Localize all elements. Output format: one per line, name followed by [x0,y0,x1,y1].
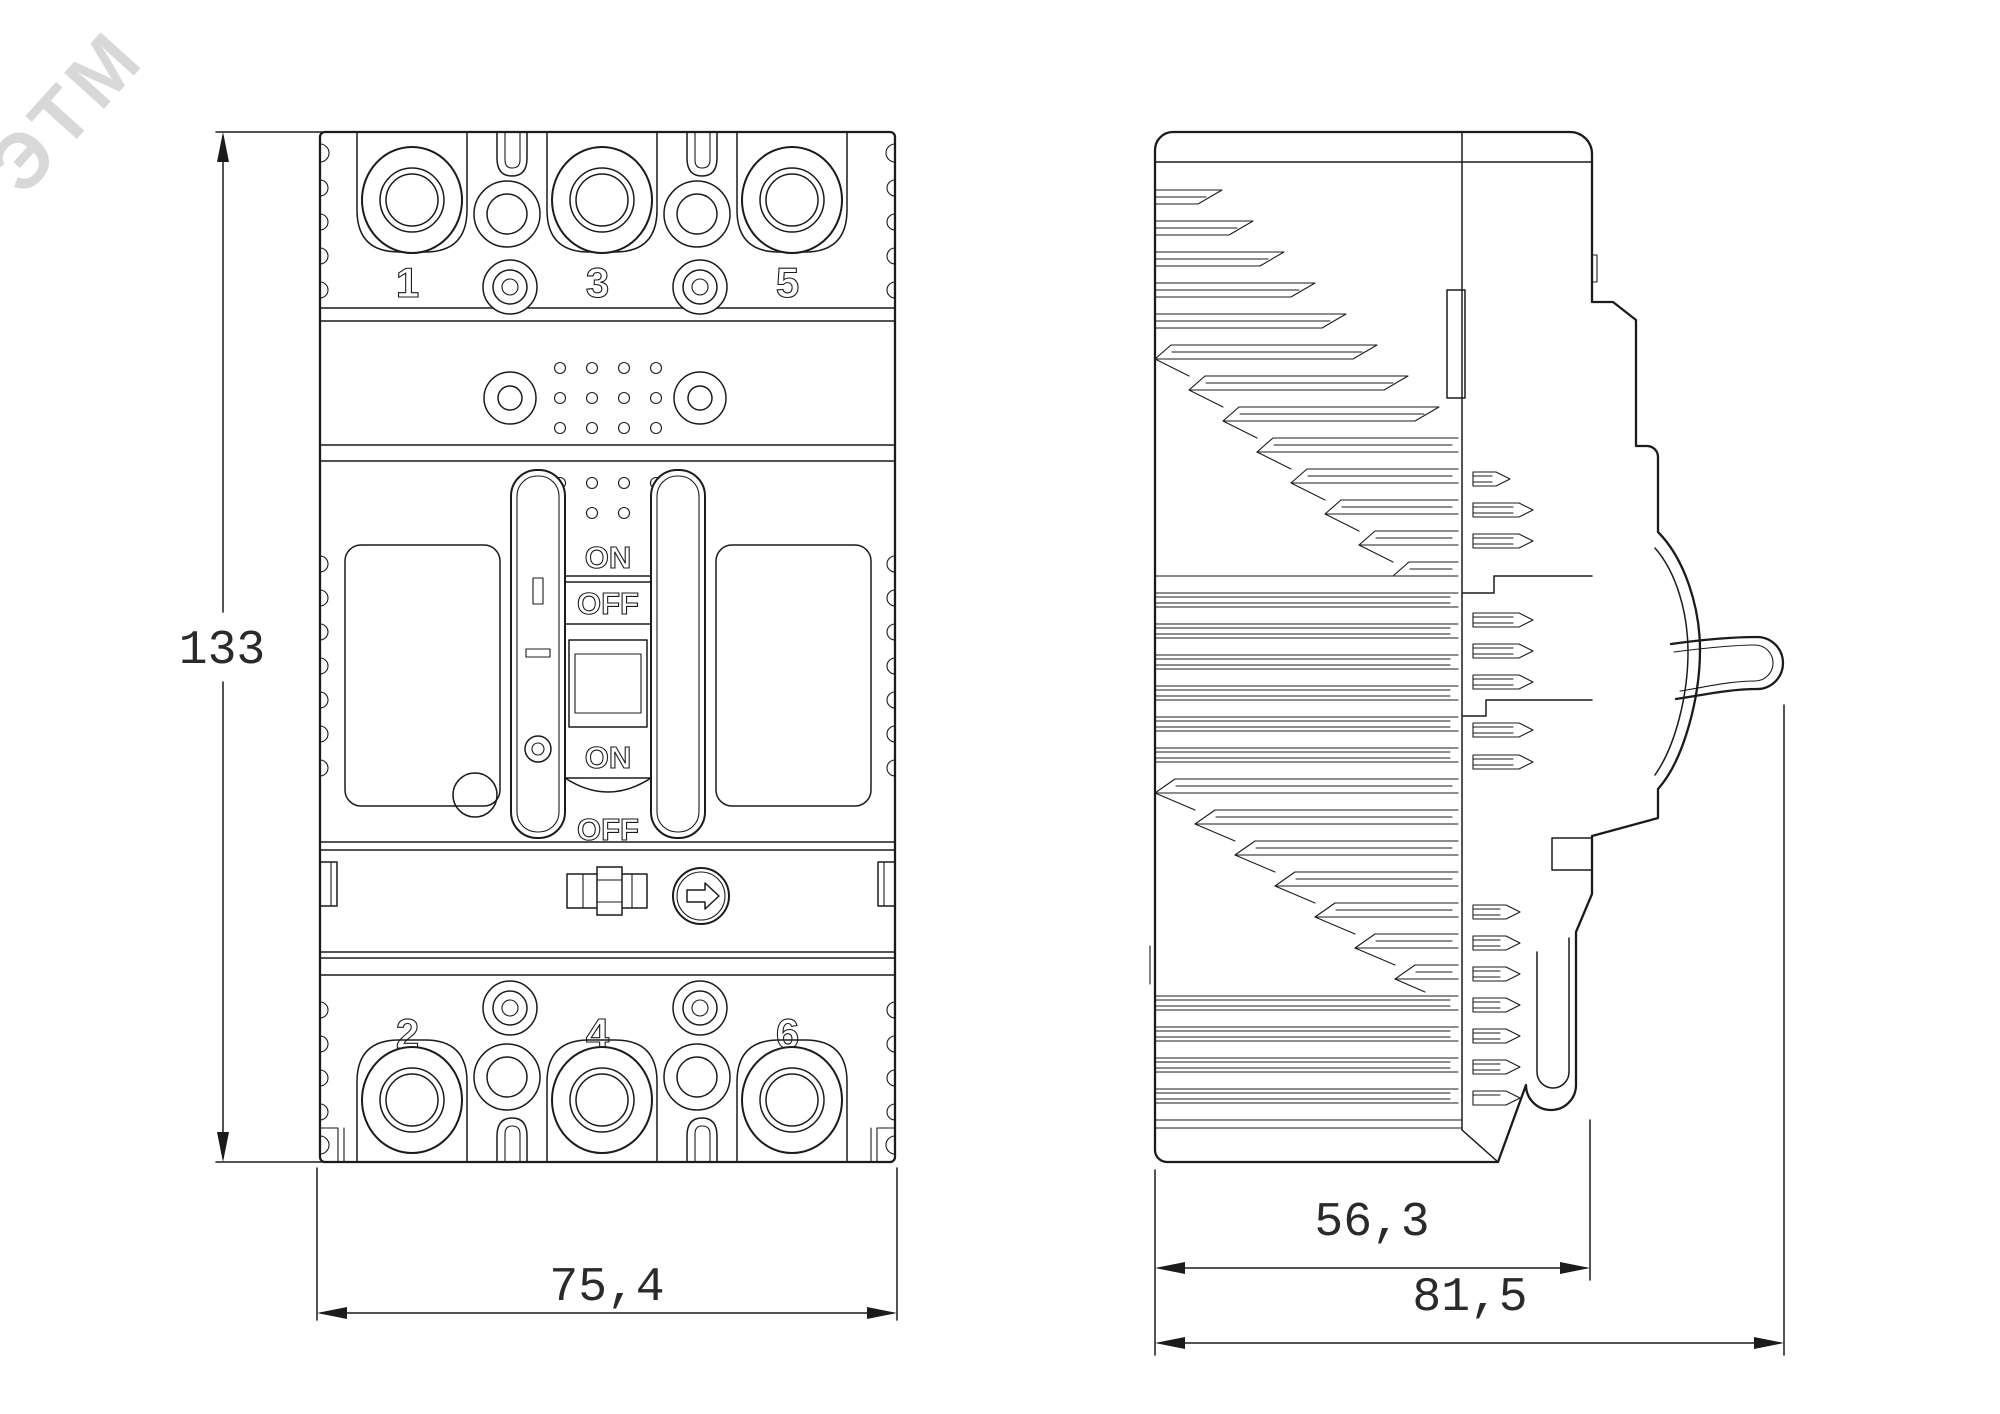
front-view: 1 3 5 [320,132,895,1162]
bottom-terminals [362,1044,842,1153]
louvers-upper [1155,190,1346,328]
dimension-width: 75,4 [317,1168,897,1320]
side-parting-lines [1462,576,1592,716]
divider-top-terminal-zone [320,308,895,321]
dimension-height: 133 [179,132,322,1162]
terminal-label-1: 1 [396,259,420,306]
rail-screw [525,736,551,762]
right-pole-cover [716,545,871,806]
top-terminals [362,147,842,253]
right-clip [878,862,895,906]
divider-upper-mid-zone [320,445,895,461]
terminal-label-3: 3 [586,259,610,306]
switch-off-label-top: OFF [577,586,639,621]
din-rail-stop [1552,838,1592,870]
toggle-grip[interactable] [569,640,647,727]
left-pole-cover [345,545,500,806]
divider-bottom-terminal-zone [320,952,895,975]
terminal-label-5: 5 [776,259,800,306]
cover-screws-upper [484,372,726,424]
dimension-height-value: 133 [179,624,265,678]
switch-on-label-bottom: ON [585,740,632,775]
louvers-staircase-lower [1155,779,1458,992]
left-clip [320,862,337,906]
drawing-sheet: 1 3 5 [0,0,2000,1414]
dimension-depth-overall-value: 81,5 [1412,1271,1527,1325]
switch-on-label-top: ON [585,540,632,575]
side-body-outline [1155,132,1700,1162]
right-edge-scallops [886,144,895,1154]
switch-off-label-bottom: OFF [577,812,639,847]
side-view [1150,132,1783,1162]
dimensions: 133 75,4 56,3 [179,132,1784,1355]
toggle-switch[interactable]: ON OFF ON OFF [565,540,651,847]
vent-dots-upper [555,363,662,434]
technical-drawing-circuit-breaker: ЭТМ [0,0,2000,1414]
accessory-strip [320,862,895,924]
dimension-depth-body-value: 56,3 [1314,1196,1429,1250]
interlock-slider[interactable] [567,867,647,915]
louvers-bottom [1155,996,1462,1128]
dimension-width-value: 75,4 [549,1261,664,1315]
test-button [453,773,497,817]
vent-dots-lower [555,478,662,519]
louvers-middle [1155,593,1458,762]
din-hook-channel [1537,938,1569,1088]
rotary-indicator [673,868,729,924]
dimension-depth-overall: 81,5 [1155,705,1784,1355]
louvers-staircase-upper [1155,345,1458,576]
left-edge-scallops [320,144,329,1154]
louvers-right-section [1473,472,1533,1105]
